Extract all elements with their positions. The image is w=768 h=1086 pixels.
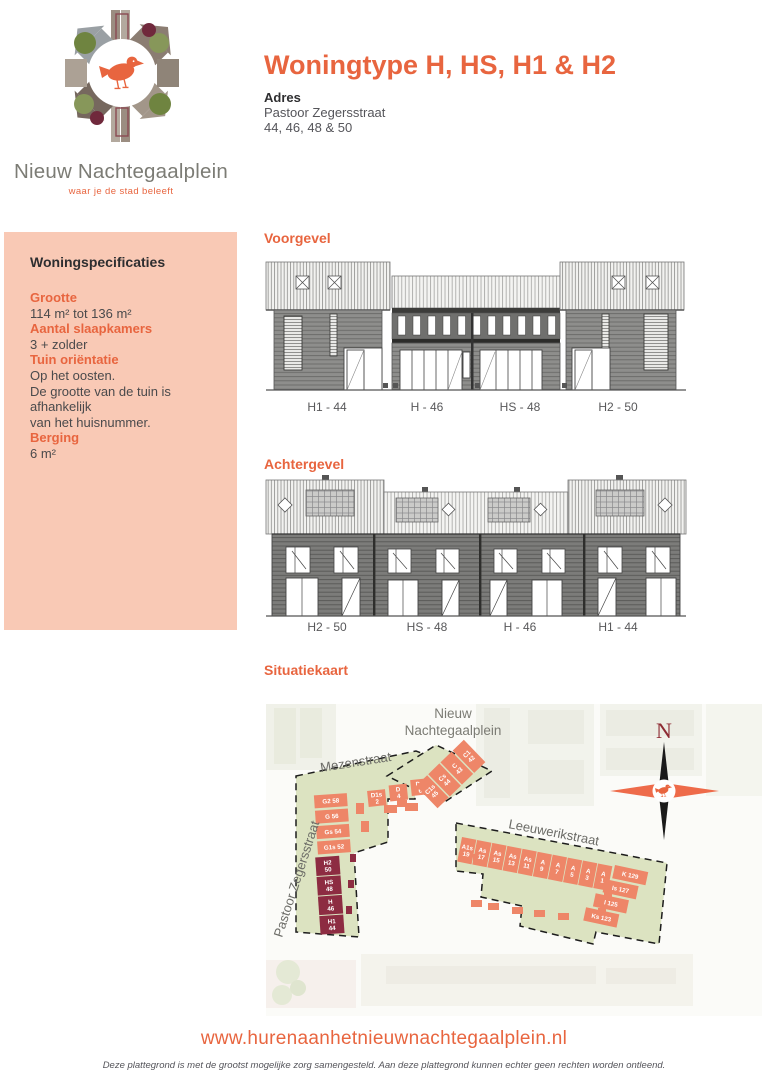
- map-place-label-line2: Nachtegaalplein: [405, 723, 502, 738]
- logo-title: Nieuw Nachtegaalplein: [0, 160, 242, 184]
- specs-heading: Woningspecificaties: [30, 254, 219, 270]
- address-street: Pastoor Zegersstraat: [264, 105, 385, 120]
- front-elevation-unit-labels: H1 - 44 H - 46 HS - 48 H2 - 50: [264, 400, 688, 416]
- spec-value: 114 m² tot 136 m²: [30, 306, 219, 322]
- front-unit-label: H2 - 50: [576, 400, 660, 414]
- footer-disclaimer: Deze plattegrond is met de grootst mogel…: [0, 1060, 768, 1071]
- spec-value: van het huisnummer.: [30, 415, 219, 431]
- logo-graphic: [52, 8, 192, 158]
- spec-value: De grootte van de tuin is afhankelijk: [30, 384, 219, 415]
- map-place-label-line1: Nieuw: [434, 706, 472, 721]
- rear-unit-label: H2 - 50: [285, 620, 369, 634]
- address-label: Adres: [264, 90, 385, 105]
- spec-label: Aantal slaapkamers: [30, 321, 219, 337]
- brochure-page: Nieuw Nachtegaalplein waar je de stad be…: [0, 0, 768, 1086]
- rear-elevation-unit-labels: H2 - 50 HS - 48 H - 46 H1 - 44: [264, 620, 688, 636]
- spec-label: Tuin oriëntatie: [30, 352, 219, 368]
- front-elevation-heading: Voorgevel: [264, 230, 331, 246]
- spec-label: Grootte: [30, 290, 219, 306]
- map-unit-label: HS48: [324, 879, 334, 893]
- front-unit-label: HS - 48: [478, 400, 562, 414]
- rear-unit-label: H - 46: [478, 620, 562, 634]
- front-unit-label: H - 46: [385, 400, 469, 414]
- front-unit-label: H1 - 44: [285, 400, 369, 414]
- spec-value: 3 + zolder: [30, 337, 219, 353]
- map-unit-label: G 56: [325, 813, 339, 821]
- logo-tagline: waar je de stad beleeft: [0, 186, 242, 197]
- spec-label: Berging: [30, 430, 219, 446]
- specs-panel: Woningspecificaties Grootte114 m² tot 13…: [4, 232, 237, 630]
- map-unit-label: Gs 54: [324, 828, 342, 836]
- rear-elevation-heading: Achtergevel: [264, 456, 344, 472]
- map-unit-label: G2 58: [322, 797, 340, 805]
- rear-elevation-drawing: [264, 474, 688, 624]
- address-block: Adres Pastoor Zegersstraat 44, 46, 48 & …: [264, 90, 385, 135]
- footer-url[interactable]: www.hurenaanhetnieuwnachtegaalplein.nl: [0, 1028, 768, 1050]
- map-unit-label: G1s 52: [324, 843, 345, 851]
- site-map: G2 58G 56Gs 54G1s 52H250HS48H46H144D1s2D…: [266, 704, 762, 1016]
- front-elevation-drawing: [264, 250, 688, 400]
- sitemap-heading: Situatiekaart: [264, 662, 348, 678]
- rear-unit-label: H1 - 44: [576, 620, 660, 634]
- spec-value: 6 m²: [30, 446, 219, 462]
- rear-unit-label: HS - 48: [385, 620, 469, 634]
- address-numbers: 44, 46, 48 & 50: [264, 120, 385, 135]
- page-title: Woningtype H, HS, H1 & H2: [264, 50, 616, 81]
- specs-list: Grootte114 m² tot 136 m²Aantal slaapkame…: [30, 290, 219, 462]
- compass-north-label: N: [656, 718, 672, 743]
- spec-value: Op het oosten.: [30, 368, 219, 384]
